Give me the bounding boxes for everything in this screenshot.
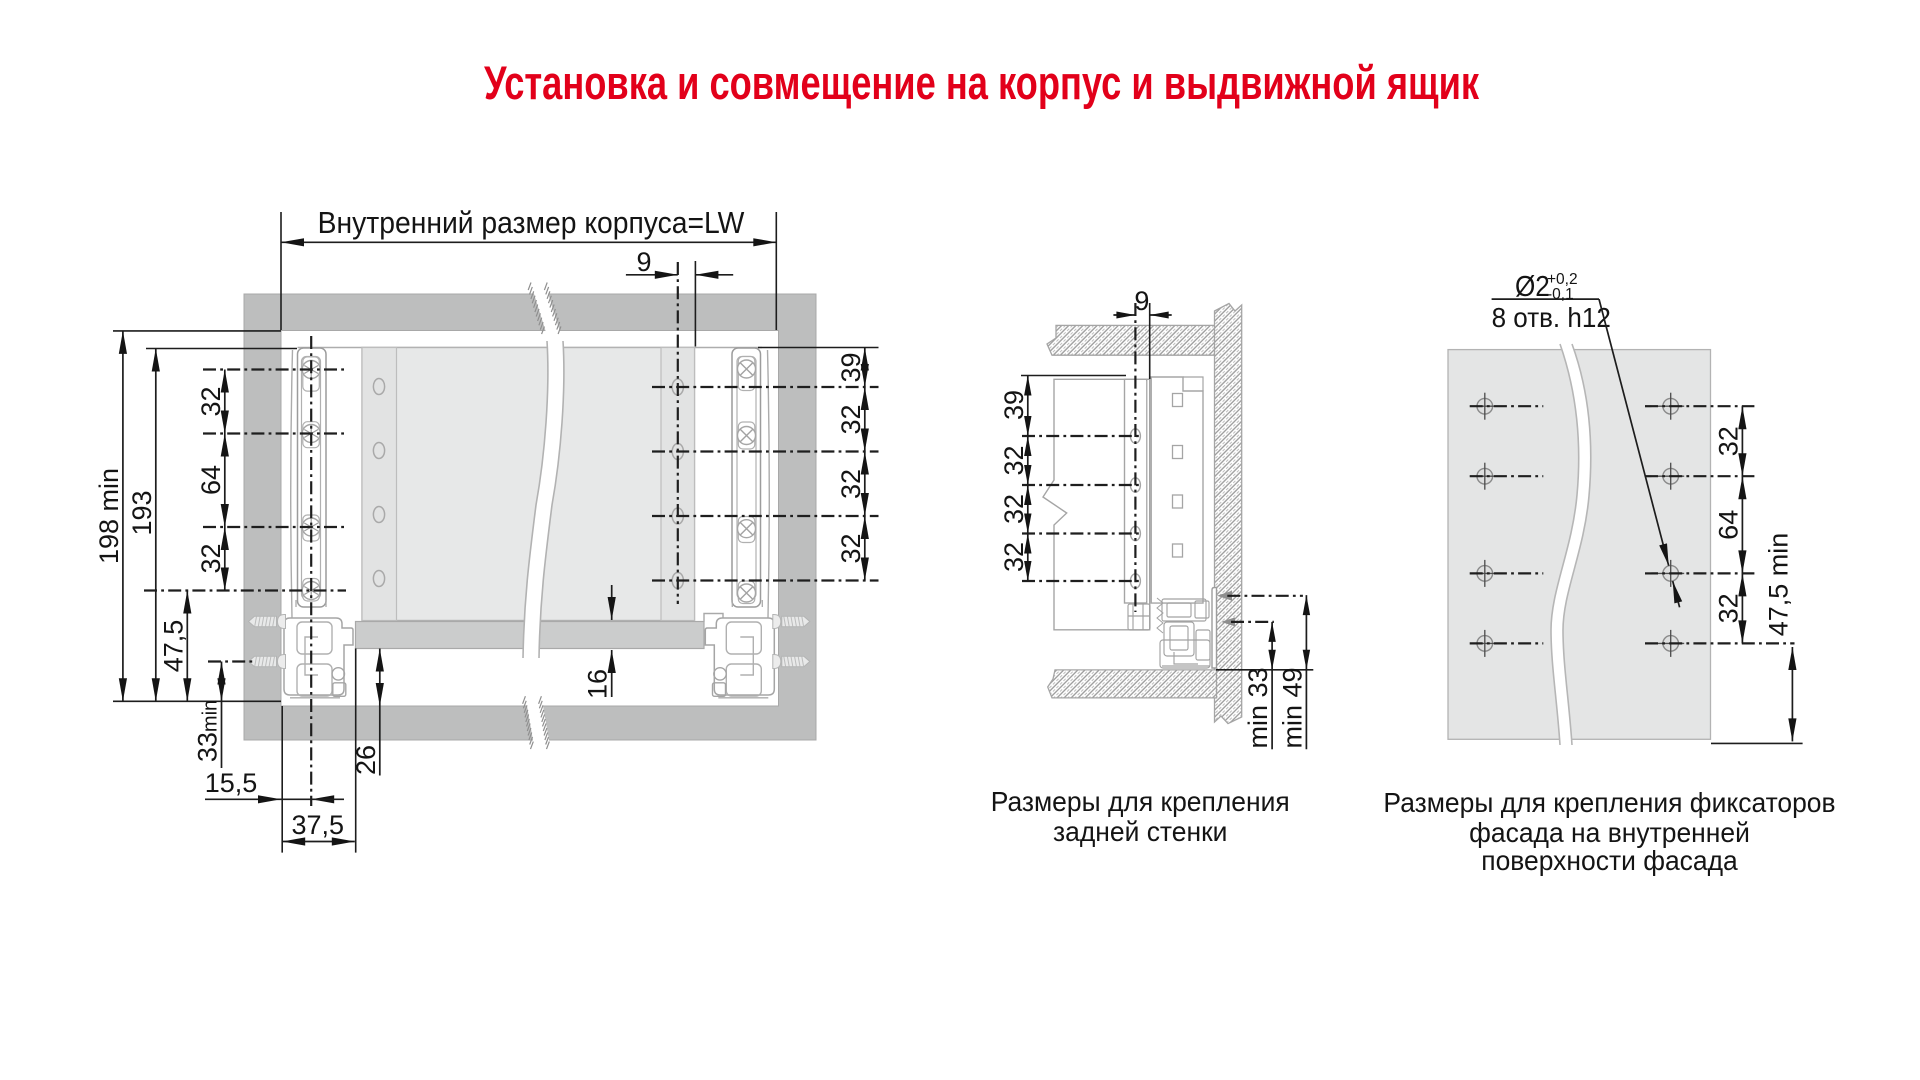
svg-text:Размеры для крепления фиксатор: Размеры для крепления фиксаторов (1383, 786, 1835, 818)
svg-text:32: 32 (999, 445, 1029, 475)
svg-text:64: 64 (196, 465, 226, 495)
svg-text:16: 16 (583, 669, 613, 699)
svg-text:32: 32 (196, 543, 226, 573)
svg-text:Установка и совмещение на корп: Установка и совмещение на корпус и выдви… (484, 56, 1480, 109)
svg-text:26: 26 (351, 745, 381, 775)
svg-text:32: 32 (999, 542, 1029, 572)
svg-text:198 min: 198 min (94, 468, 124, 564)
svg-text:min 49: min 49 (1277, 667, 1307, 748)
svg-text:Ø2: Ø2 (1515, 270, 1550, 303)
svg-text:15,5: 15,5 (205, 768, 258, 798)
svg-text:Внутренний размер корпуса=LW: Внутренний размер корпуса=LW (318, 206, 745, 240)
svg-text:-0,1: -0,1 (1547, 286, 1574, 303)
svg-text:32: 32 (196, 386, 226, 416)
svg-text:8 отв. h12: 8 отв. h12 (1492, 302, 1611, 333)
svg-text:64: 64 (1713, 510, 1743, 540)
svg-text:Размеры для крепления: Размеры для крепления (991, 785, 1290, 817)
svg-text:min 33: min 33 (1243, 667, 1273, 748)
svg-text:32: 32 (836, 533, 866, 563)
svg-text:193: 193 (127, 490, 157, 535)
svg-text:37,5: 37,5 (292, 810, 345, 840)
svg-text:9: 9 (1134, 286, 1149, 316)
svg-text:47,5: 47,5 (158, 620, 188, 673)
svg-text:задней стенки: задней стенки (1053, 815, 1227, 847)
svg-text:47,5 min: 47,5 min (1763, 533, 1793, 637)
svg-text:39: 39 (999, 390, 1029, 420)
svg-text:32: 32 (999, 494, 1029, 524)
svg-text:32: 32 (836, 469, 866, 499)
svg-text:32: 32 (1713, 426, 1743, 456)
svg-text:39: 39 (836, 352, 866, 382)
svg-text:поверхности фасада: поверхности фасада (1481, 844, 1738, 876)
svg-text:9: 9 (636, 247, 651, 277)
svg-text:32: 32 (1713, 593, 1743, 623)
svg-text:32: 32 (836, 404, 866, 434)
